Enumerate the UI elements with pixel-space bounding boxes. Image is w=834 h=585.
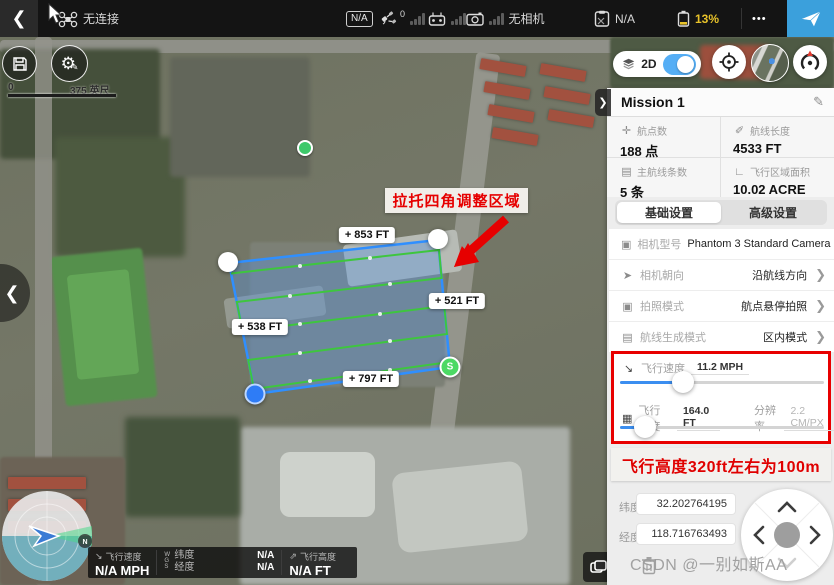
chevron-right-icon: ❯ xyxy=(815,267,826,283)
watermark: CSDN @一别如斯AA xyxy=(630,551,834,575)
map-layers-icon xyxy=(590,560,607,574)
battery-status: 13% xyxy=(677,0,719,37)
checklist-icon xyxy=(594,10,610,27)
corner-handle-bottom-left[interactable] xyxy=(245,384,266,405)
back-button[interactable]: ❮ xyxy=(0,0,38,37)
waypoint-icon: ✛ xyxy=(620,124,633,137)
corner-handle-top-right[interactable] xyxy=(428,229,448,249)
altitude-slider-knob[interactable] xyxy=(634,416,656,438)
move-cross-icon: + xyxy=(349,373,355,385)
telemetry-speed: ↘飞行速度 N/A MPH xyxy=(88,547,156,578)
telemetry-altitude: ⇗飞行高度 N/A FT xyxy=(282,547,343,578)
topbar-divider xyxy=(741,8,742,29)
wgs-label: WGS xyxy=(164,552,172,578)
settings-tabs: 基础设置 高级设置 xyxy=(615,200,827,225)
mission-title: Mission 1 xyxy=(621,94,685,110)
poi-marker xyxy=(297,140,313,156)
camera-icon: ▣ xyxy=(621,300,634,313)
chevron-left-icon: ❮ xyxy=(11,8,26,29)
altitude-icon: ⇗ xyxy=(289,551,297,562)
dpad-left-button[interactable] xyxy=(755,527,763,543)
mission-stats: ✛航点数 188 点 ✐航线长度 4533 FT ▤主航线条数 5 条 ∟飞行区… xyxy=(607,117,834,197)
2d-toggle-switch[interactable] xyxy=(663,54,696,75)
dpad-center-button[interactable] xyxy=(774,522,800,548)
tab-advanced-settings[interactable]: 高级设置 xyxy=(721,202,825,223)
lines-icon: ▤ xyxy=(620,165,633,178)
settings-button[interactable]: ⚙✎ xyxy=(51,45,88,82)
rc-signal-bars xyxy=(451,13,466,25)
compass-reset-button[interactable] xyxy=(793,45,827,79)
chevron-right-icon: ❯ xyxy=(598,96,607,109)
locate-me-button[interactable] xyxy=(712,45,746,79)
annotation-arrow xyxy=(454,219,506,267)
camera-icon xyxy=(466,12,484,26)
edge-length-label-bottom[interactable]: +797 FT xyxy=(343,371,399,387)
stat-route-length: ✐航线长度 4533 FT xyxy=(720,117,834,156)
chevron-right-icon: ❯ xyxy=(815,329,826,345)
more-button[interactable]: ••• xyxy=(752,0,767,37)
area-icon: ∟ xyxy=(733,166,746,178)
gps-status: 0 xyxy=(380,0,425,37)
2d-label: 2D xyxy=(641,57,656,71)
flight-mode-badge: N/A xyxy=(346,0,373,37)
paper-plane-icon xyxy=(800,10,822,28)
telemetry-bar: ↘飞行速度 N/A MPH WGS 纬度N/A 经度N/A ⇗飞行高度 N/A … xyxy=(88,547,357,578)
rc-status xyxy=(428,0,466,37)
move-cross-icon: + xyxy=(345,229,351,241)
setting-route-mode[interactable]: ▤ 航线生成模式 区内模式 ❯ xyxy=(609,322,834,352)
start-marker-label: S xyxy=(447,362,454,373)
locate-icon xyxy=(719,52,739,72)
altitude-note: 飞行高度320ft左右为100m xyxy=(611,448,831,481)
longitude-input[interactable]: 118.716763493 xyxy=(636,523,736,545)
move-cross-icon: + xyxy=(238,321,244,333)
app-window: S +853 FT +521 FT +538 FT +797 FT 拉托四角调整… xyxy=(0,0,834,585)
speed-arrow-icon: ↘ xyxy=(95,551,103,562)
dpad-up-button[interactable] xyxy=(779,503,795,511)
takeoff-button[interactable] xyxy=(787,0,834,37)
setting-camera-heading[interactable]: ➤ 相机朝向 沿航线方向 ❯ xyxy=(609,260,834,290)
map-scale-zero: 0 xyxy=(8,82,14,93)
remote-controller-icon xyxy=(428,11,446,26)
telemetry-wgs: WGS 纬度N/A 经度N/A xyxy=(157,547,281,578)
heading-icon: ➤ xyxy=(621,269,634,282)
setting-photo-mode[interactable]: ▣ 拍照模式 航点悬停拍照 ❯ xyxy=(609,291,834,321)
mission-header: Mission 1 ✎ xyxy=(607,88,834,117)
map-scale-bar xyxy=(8,94,116,97)
map-2d-toggle-pill[interactable]: 2D xyxy=(613,51,701,77)
speed-value-field[interactable]: 11.2 MPH xyxy=(691,361,749,375)
edge-length-label-top[interactable]: +853 FT xyxy=(339,227,395,243)
panel-collapse-flap[interactable]: ❯ xyxy=(595,89,611,116)
stat-main-lines: ▤主航线条数 5 条 xyxy=(607,158,720,201)
setting-camera-model[interactable]: ▣ 相机型号 Phantom 3 Standard Camera ❯ xyxy=(609,229,834,259)
mission-area-polygon[interactable] xyxy=(229,240,450,394)
save-icon xyxy=(12,56,28,72)
gps-signal-bars xyxy=(410,13,425,25)
pencil-icon: ✎ xyxy=(71,62,79,73)
aircraft-connection: 无连接 xyxy=(58,0,119,37)
annotation-banner: 拉托四角调整区域 xyxy=(385,188,528,213)
route-mode-icon: ▤ xyxy=(621,331,634,344)
corner-handle-top-left[interactable] xyxy=(218,252,238,272)
tab-basic-settings[interactable]: 基础设置 xyxy=(617,202,721,223)
mouse-cursor xyxy=(48,3,63,25)
image-icon: ▦ xyxy=(622,412,632,425)
chevron-right-icon: ❯ xyxy=(815,298,826,314)
move-cross-icon: + xyxy=(435,295,441,307)
latitude-input[interactable]: 32.202764195 xyxy=(636,493,736,515)
dpad-right-button[interactable] xyxy=(811,527,819,543)
battery-icon xyxy=(677,10,690,27)
speed-slider-knob[interactable] xyxy=(672,371,694,393)
edge-length-label-left[interactable]: +538 FT xyxy=(232,319,288,335)
start-marker[interactable]: S xyxy=(440,357,461,378)
chevron-left-icon: ❮ xyxy=(4,283,19,304)
compass-north-label: N xyxy=(82,539,87,546)
stat-waypoints: ✛航点数 188 点 xyxy=(607,117,720,160)
camera-icon: ▣ xyxy=(621,238,631,251)
top-status-bar: ❮ 无连接 N/A 0 无相机 N/A 13% ••• xyxy=(0,0,834,37)
checklist-status: N/A xyxy=(594,0,635,37)
edit-mission-icon[interactable]: ✎ xyxy=(813,94,824,110)
speed-arrow-icon: ↘ xyxy=(622,362,635,375)
satellite-icon xyxy=(380,11,397,27)
edge-length-label-right[interactable]: +521 FT xyxy=(429,293,485,309)
compass-icon xyxy=(798,50,822,74)
attitude-compass-widget: N xyxy=(1,490,94,583)
save-mission-button[interactable] xyxy=(2,46,37,81)
camera-signal-bars xyxy=(489,13,504,25)
camera-status: 无相机 xyxy=(466,0,545,37)
layers-icon xyxy=(622,57,635,71)
stat-area: ∟飞行区域面积 10.02 ACRE xyxy=(720,158,834,197)
route-length-icon: ✐ xyxy=(733,124,746,137)
minimap-thumbnail[interactable] xyxy=(751,44,789,82)
